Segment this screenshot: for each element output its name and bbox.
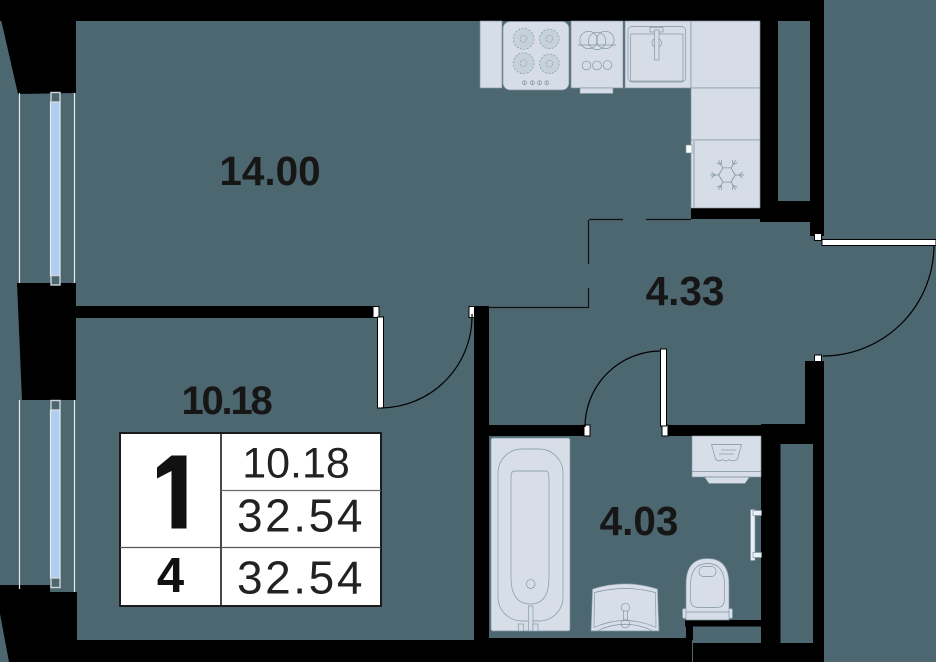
svg-text:4: 4: [157, 549, 184, 603]
svg-text:14.00: 14.00: [219, 148, 320, 194]
svg-text:4.33: 4.33: [646, 268, 725, 314]
svg-text:10.18: 10.18: [181, 379, 272, 423]
svg-text:32.54: 32.54: [237, 552, 365, 604]
svg-text:32.54: 32.54: [237, 490, 365, 542]
svg-text:4.03: 4.03: [600, 498, 679, 544]
svg-text:10.18: 10.18: [242, 440, 350, 488]
